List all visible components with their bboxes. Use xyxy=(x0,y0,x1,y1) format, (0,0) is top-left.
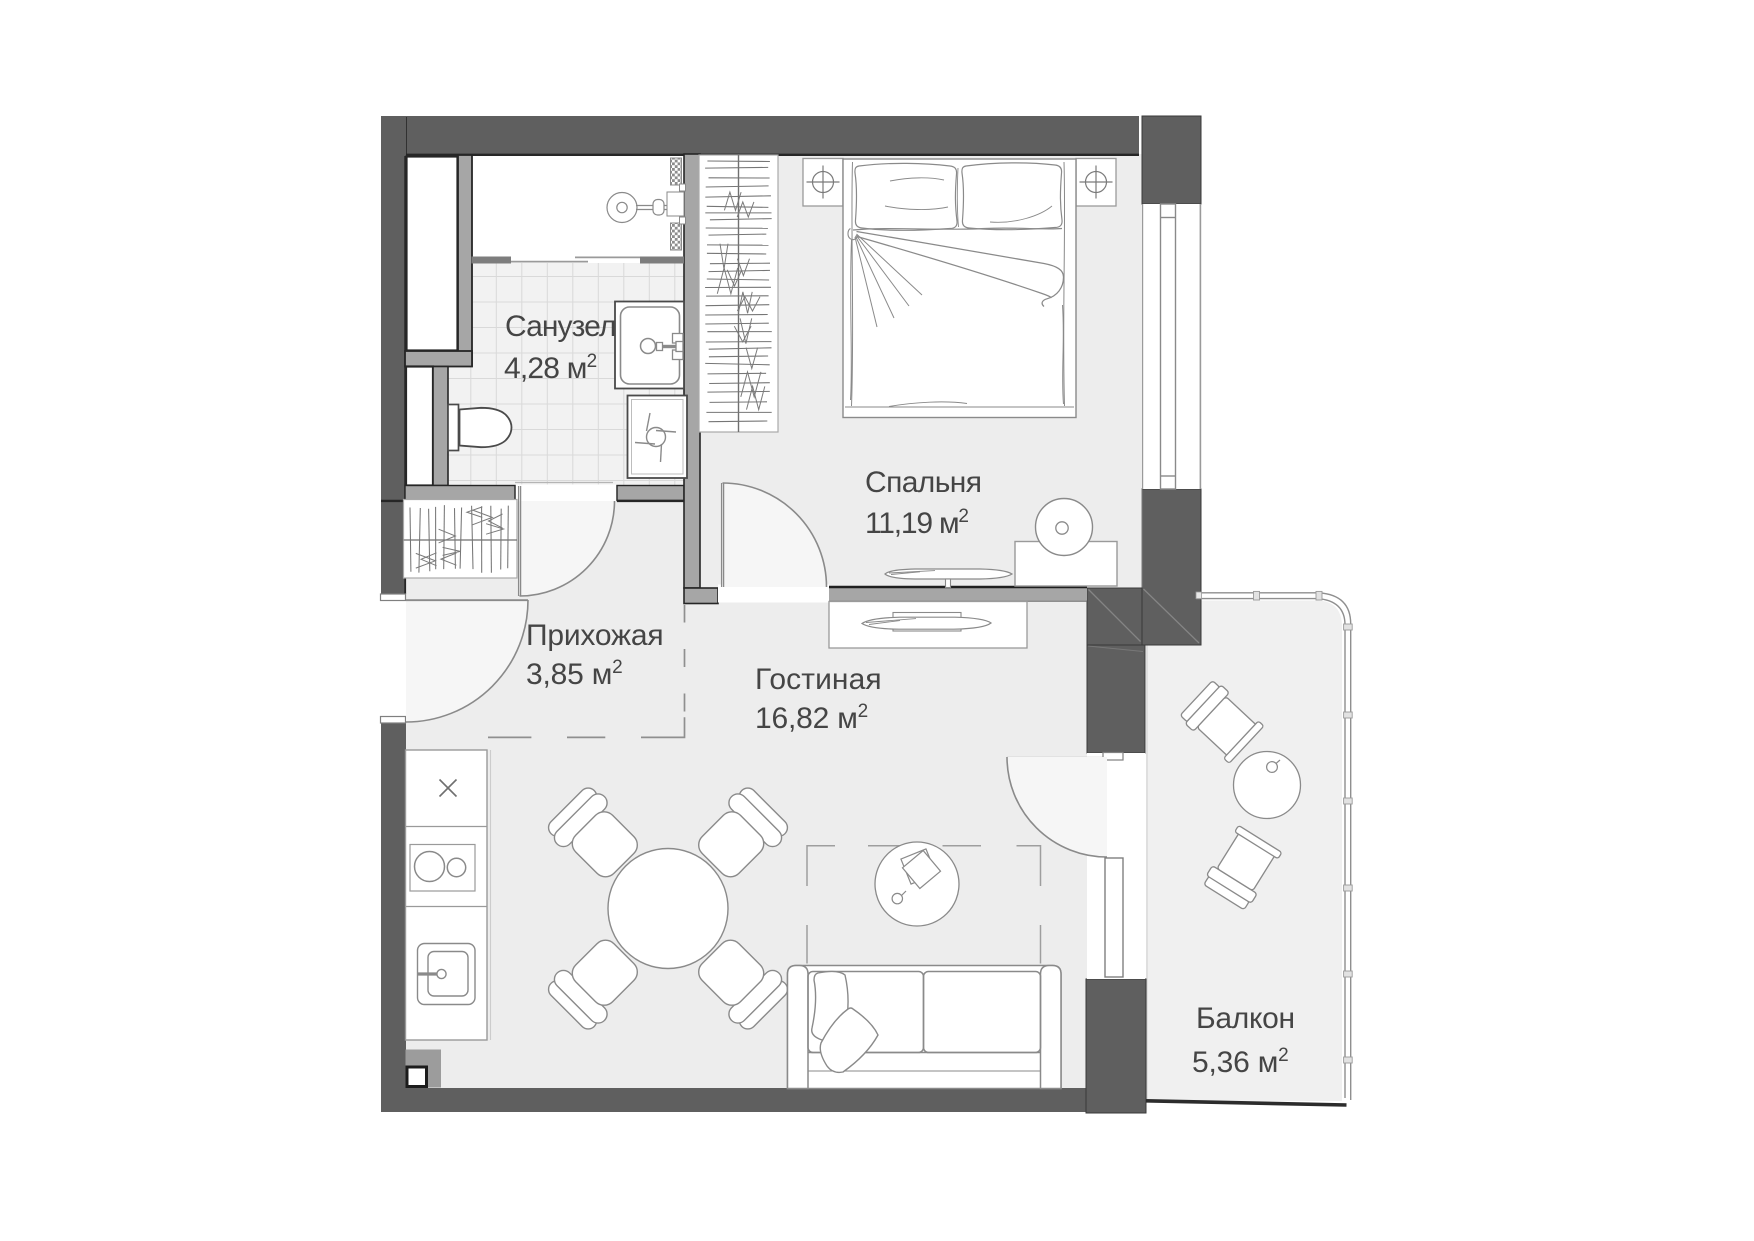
svg-text:4,28 м2: 4,28 м2 xyxy=(504,351,597,385)
svg-text:5,36 м2: 5,36 м2 xyxy=(1192,1045,1289,1079)
svg-text:3,85 м2: 3,85 м2 xyxy=(526,657,623,691)
svg-text:Прихожая: Прихожая xyxy=(526,619,663,652)
svg-text:Санузел: Санузел xyxy=(505,310,616,343)
svg-text:11,19 м2: 11,19 м2 xyxy=(865,506,968,540)
svg-text:Гостиная: Гостиная xyxy=(755,663,882,696)
svg-text:Спальня: Спальня xyxy=(865,466,981,499)
svg-text:Балкон: Балкон xyxy=(1196,1002,1295,1035)
svg-text:16,82 м2: 16,82 м2 xyxy=(755,701,868,735)
